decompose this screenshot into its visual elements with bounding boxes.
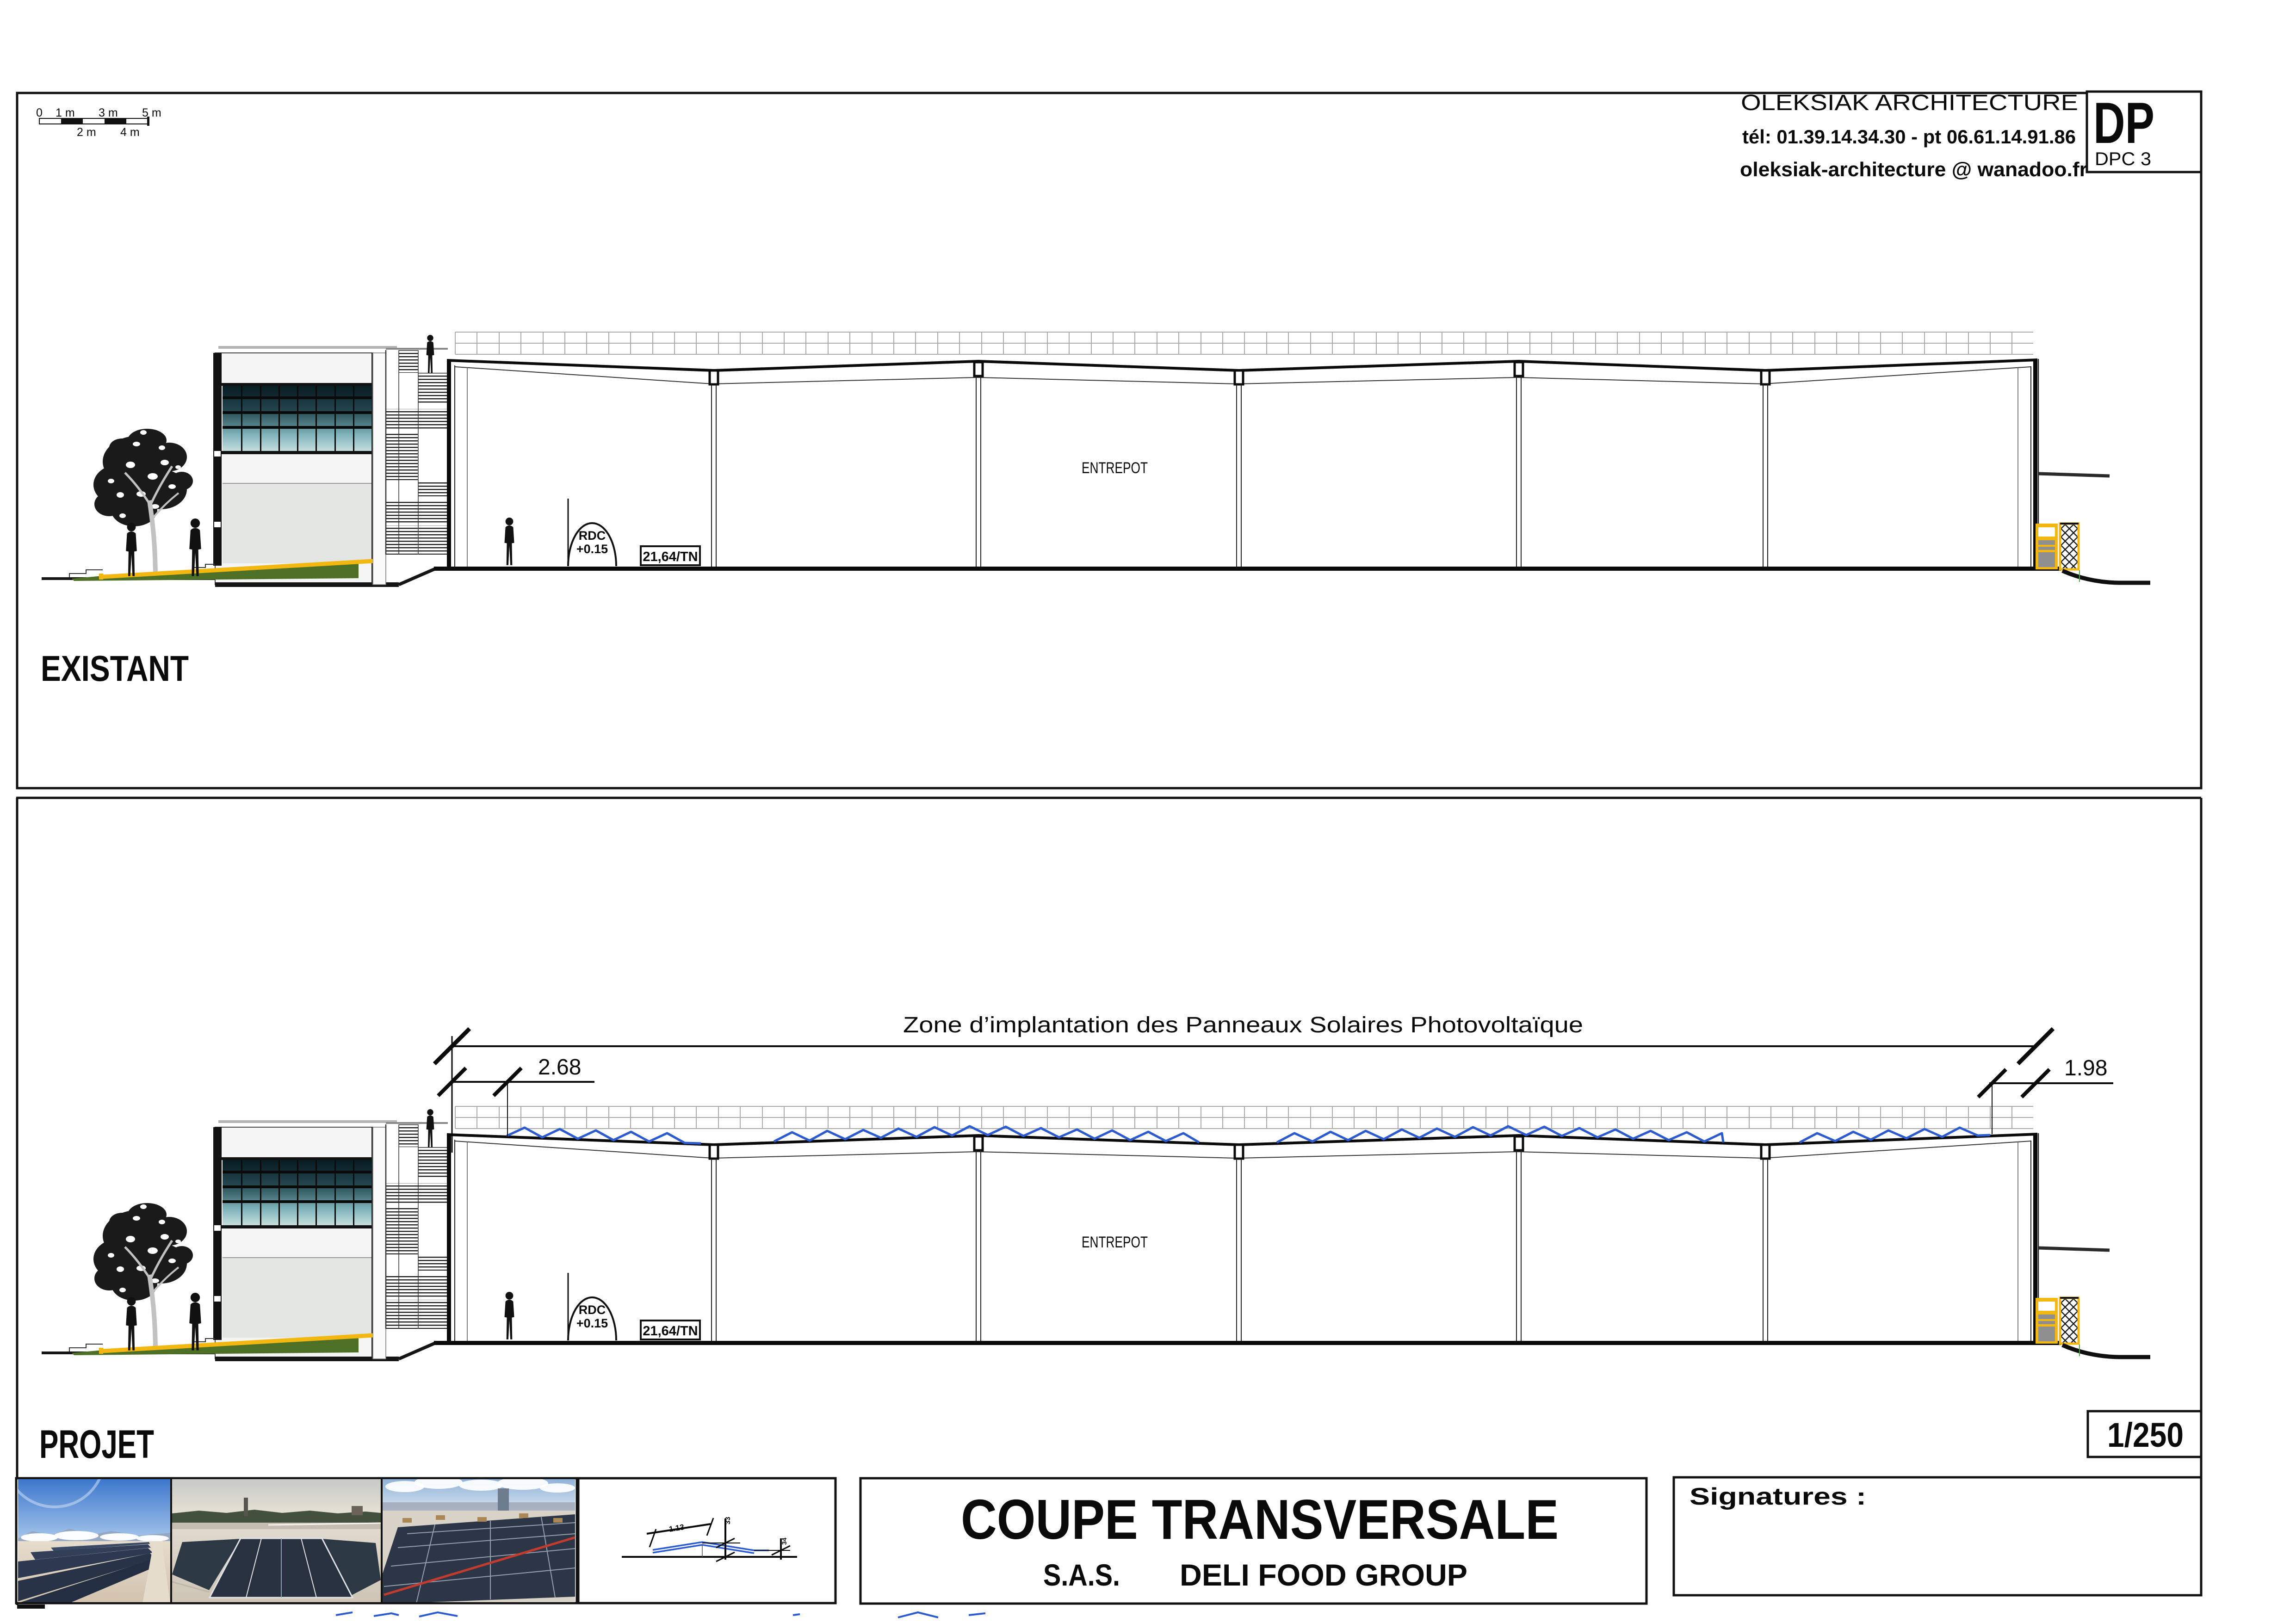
svg-text:34: 34 bbox=[780, 1537, 788, 1545]
svg-text:COUPE TRANSVERSALE: COUPE TRANSVERSALE bbox=[961, 1488, 1559, 1551]
svg-text:tél: 01.39.14.34.30 - pt 06.61: tél: 01.39.14.34.30 - pt 06.61.14.91.86 bbox=[1742, 126, 2076, 148]
svg-text:Zone d’implantation des Pannea: Zone d’implantation des Panneaux Solaire… bbox=[903, 1013, 1583, 1037]
svg-text:Signatures :: Signatures : bbox=[1690, 1483, 1866, 1510]
svg-text:OLEKSIAK ARCHITECTURE: OLEKSIAK ARCHITECTURE bbox=[1741, 91, 2078, 115]
svg-text:1.98: 1.98 bbox=[2064, 1056, 2107, 1080]
svg-text:33: 33 bbox=[724, 1517, 732, 1524]
svg-text:DELI FOOD GROUP: DELI FOOD GROUP bbox=[1180, 1558, 1467, 1592]
svg-text:0: 0 bbox=[36, 106, 43, 119]
svg-text:3 m: 3 m bbox=[99, 106, 118, 119]
svg-text:4 m: 4 m bbox=[120, 126, 140, 139]
svg-text:1 m: 1 m bbox=[56, 106, 75, 119]
svg-text:2.68: 2.68 bbox=[538, 1055, 581, 1080]
svg-text:DP: DP bbox=[2093, 91, 2154, 155]
svg-text:PROJET: PROJET bbox=[39, 1422, 154, 1467]
svg-text:1/250: 1/250 bbox=[2107, 1416, 2184, 1454]
svg-text:EXISTANT: EXISTANT bbox=[41, 648, 189, 689]
svg-text:oleksiak-architecture @ wanado: oleksiak-architecture @ wanadoo.fr bbox=[1740, 158, 2087, 181]
svg-text:5 m: 5 m bbox=[142, 106, 161, 119]
svg-text:DPC 3: DPC 3 bbox=[2095, 149, 2151, 169]
svg-text:2 m: 2 m bbox=[77, 126, 96, 139]
svg-text:S.A.S.: S.A.S. bbox=[1043, 1558, 1120, 1592]
